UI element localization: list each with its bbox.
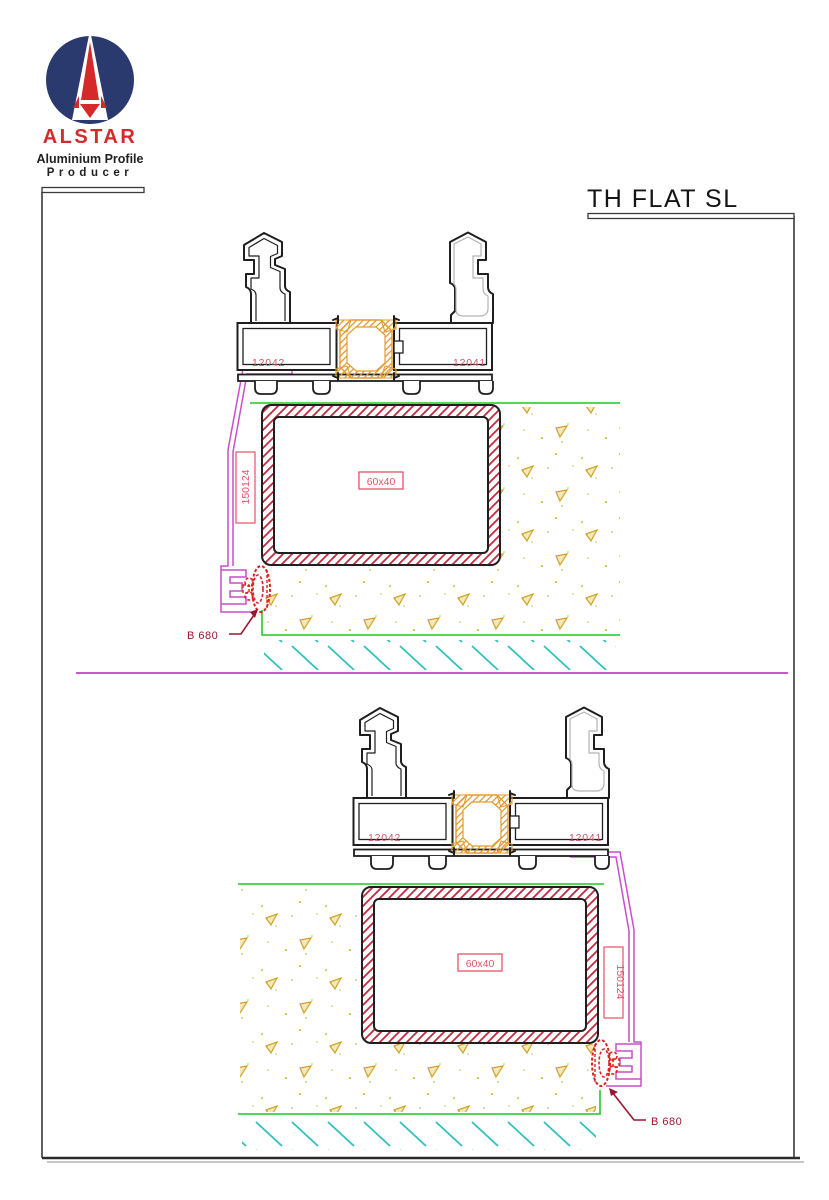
brand-tagline-line1: Aluminium Profile [30,152,150,166]
gasket-label: B 680 [651,1116,682,1128]
subsill-clip-comb [221,570,246,604]
sash-profile-label: 12042 [368,832,401,844]
brand-tagline-line2: Producer [30,167,150,179]
subsill-profile-label: 150124 [614,964,626,999]
gasket-label: B 680 [187,630,218,642]
gasket-leader-line [612,1092,646,1120]
drawing-sheet: 12042 12041 60x40 150124 B 680 [0,0,829,1200]
gasket-detail [592,1040,619,1086]
subsill-profile-label: 150124 [240,469,252,504]
title-underline-bar [588,214,794,219]
tube-size-label: 60x40 [466,958,495,970]
logo-underline-bar [42,188,144,193]
frame-profile-label: 12041 [453,357,486,369]
brand-name: ALSTAR [40,126,140,149]
logo-mark [46,30,134,124]
section-bottom: 12042 12041 60x40 150124 B 680 [238,708,682,1151]
gasket-leader-arrowhead [250,609,258,618]
subsill-clip-comb [616,1044,641,1079]
sheet-title: TH FLAT SL [587,185,739,214]
tube-size-label: 60x40 [367,476,396,488]
section-hatch-area [264,640,616,670]
aluminium-assembly [354,708,610,870]
gasket-leader-line [229,612,256,634]
frame-profile-label: 12041 [569,832,602,844]
sash-profile-label: 12042 [252,357,285,369]
cad-drawing: 12042 12041 60x40 150124 B 680 [0,0,829,1200]
section-hatch-area [242,1118,596,1150]
aluminium-assembly [238,233,494,395]
section-top: 12042 12041 60x40 150124 B 680 [187,233,620,671]
